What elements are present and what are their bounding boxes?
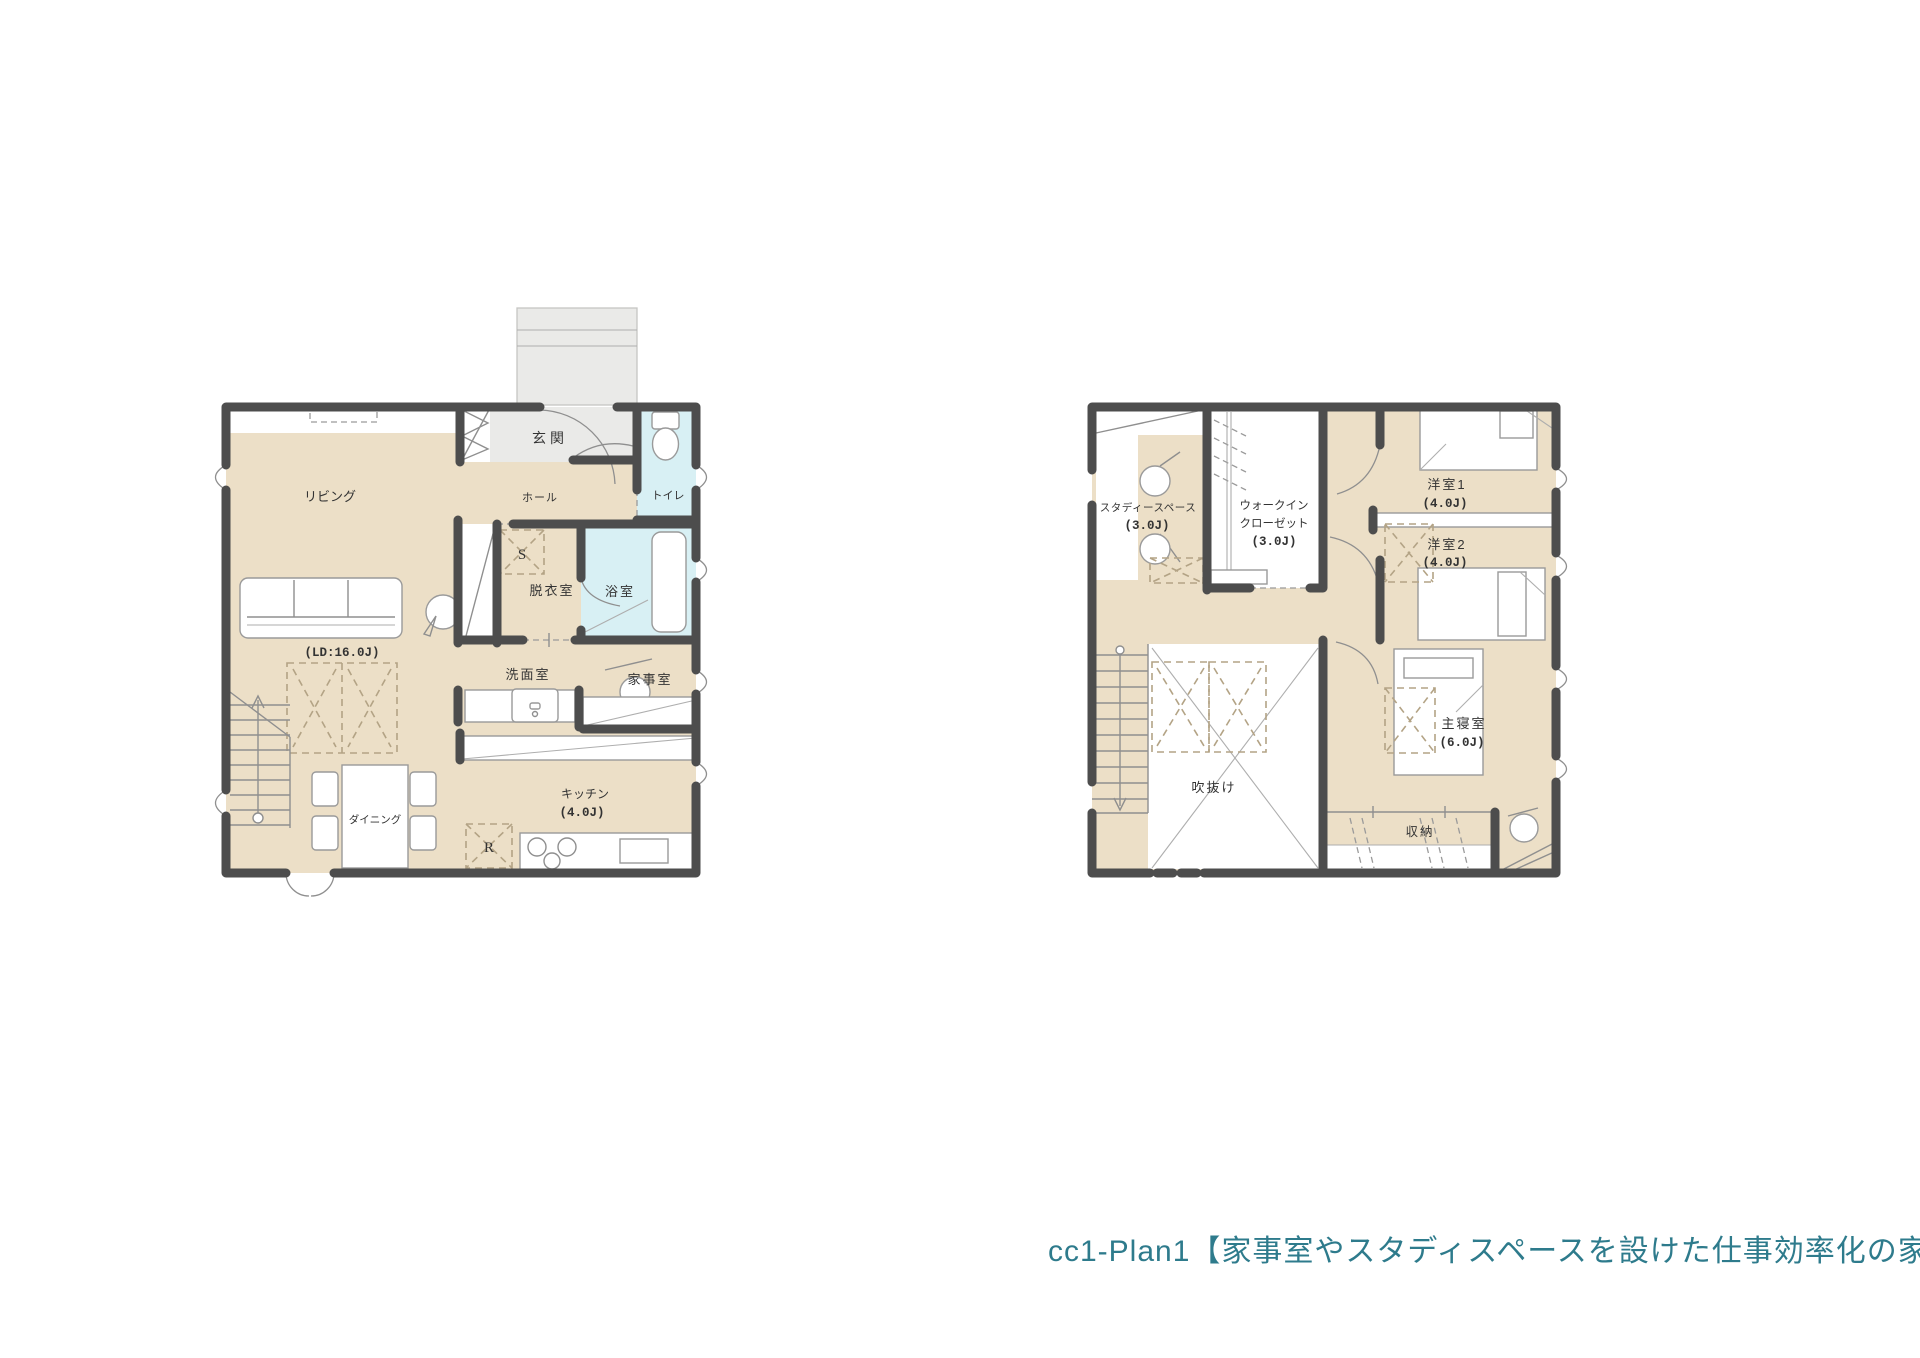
label-study-2: (3.0J) — [1124, 519, 1169, 533]
room-closet-band — [1373, 513, 1554, 527]
label-void: 吹抜け — [1191, 780, 1236, 795]
floorplan-sheet: 玄関 ホール リビング トイレ S 脱衣室 浴室 (LD:16.0J) 洗面室 … — [0, 0, 1920, 1358]
label-study-1: スタディースペース — [1100, 501, 1196, 514]
label-room2: 洋室2 — [1427, 537, 1466, 552]
second-floor-plan: スタディースペース (3.0J) ウォークイン クローゼット (3.0J) 洋室… — [1060, 380, 1600, 920]
label-room1: 洋室1 — [1427, 477, 1466, 492]
study-desk-band — [1096, 410, 1207, 435]
bed-room1 — [1420, 407, 1552, 470]
label-kitchen-size: (4.0J) — [559, 806, 604, 820]
label-toilet: トイレ — [652, 490, 685, 502]
label-wic-1: ウォークイン — [1240, 499, 1309, 512]
kitchen-counter — [520, 833, 696, 870]
label-wic-3: (3.0J) — [1251, 535, 1296, 549]
label-dining: ダイニング — [349, 813, 402, 826]
bed-master — [1385, 649, 1483, 775]
porch — [517, 308, 637, 405]
label-bath: 浴室 — [605, 584, 635, 599]
label-hall: ホール — [522, 491, 558, 504]
sofa-icon — [240, 578, 402, 638]
label-kitchen: キッチン — [561, 787, 609, 801]
label-master: 主寝室 — [1441, 716, 1486, 731]
label-storage: 収納 — [1405, 825, 1434, 839]
label-fridge: R — [484, 840, 494, 856]
label-wic-2: クローゼット — [1240, 517, 1309, 530]
label-entry: 玄関 — [532, 430, 568, 446]
corridor-pocket — [462, 524, 497, 640]
label-dressing: 脱衣室 — [529, 583, 574, 598]
toilet-icon — [652, 412, 679, 460]
label-utility: 家事室 — [627, 672, 672, 687]
first-floor-plan: 玄関 ホール リビング トイレ S 脱衣室 浴室 (LD:16.0J) 洗面室 … — [150, 230, 750, 910]
label-room1-size: (4.0J) — [1422, 497, 1467, 511]
vanity-counter — [465, 689, 575, 722]
label-closet-s: S — [518, 547, 526, 563]
label-washroom: 洗面室 — [505, 667, 550, 682]
label-living: リビング — [304, 489, 356, 504]
label-master-size: (6.0J) — [1439, 736, 1484, 750]
label-ld-size: (LD:16.0J) — [304, 646, 379, 660]
label-room2-size: (4.0J) — [1422, 556, 1467, 570]
plan-caption: cc1-Plan1【家事室やスタディスペースを設けた仕事効率化の家】 — [1048, 1226, 1918, 1270]
